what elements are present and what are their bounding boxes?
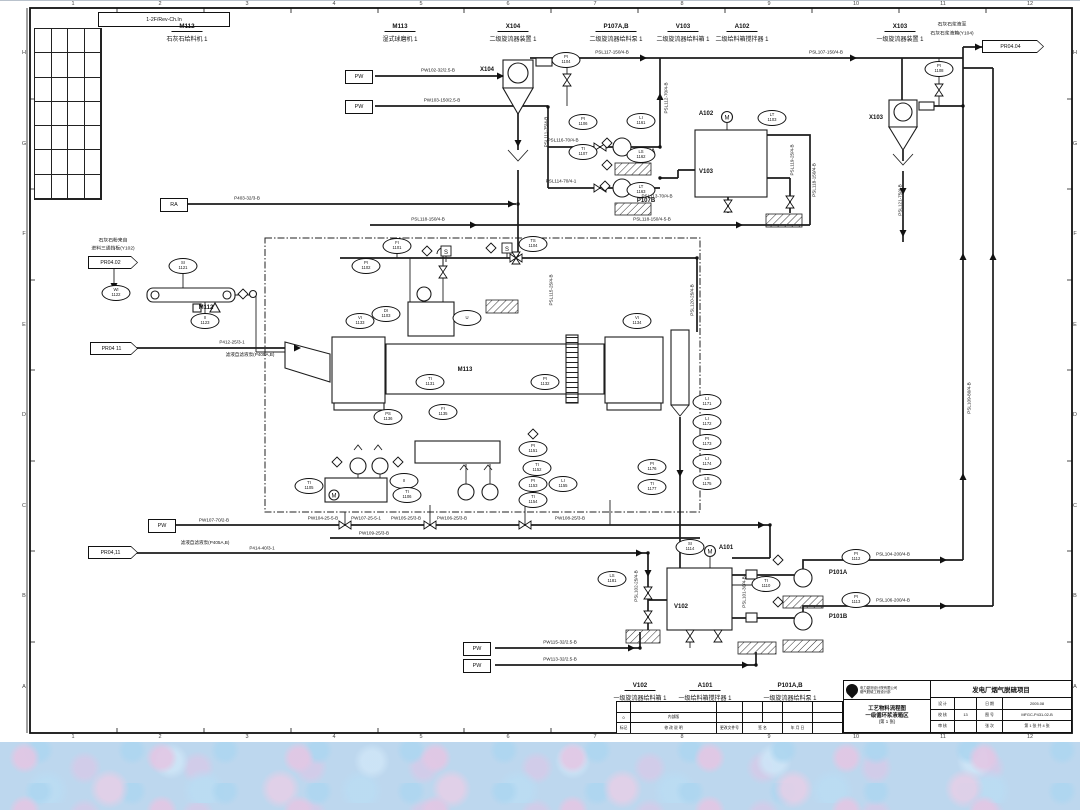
equipment-header: A102 二级给料箱搅拌器 1 <box>715 15 768 43</box>
utility-box: PW <box>345 100 373 114</box>
title-grid-cell <box>955 721 977 732</box>
utility-box: PW <box>148 519 176 533</box>
equipment-header-tag: M113 <box>384 23 415 32</box>
equipment-header: V103 二级旋流器给料箱 1 <box>656 15 709 43</box>
instrument-number: 1105 <box>304 486 313 491</box>
instrument-number: 1108 <box>934 69 943 74</box>
stream-flag-label: PR04.04 <box>1000 44 1020 50</box>
pipe-line-label: PSL113-70/4-B <box>641 194 672 199</box>
instrument-function: II <box>403 479 405 484</box>
equipment-tag: A102 <box>699 111 713 117</box>
equipment-header: P101A,B 一级旋流器给料泵 1 <box>763 674 816 702</box>
instrument-number: 1172 <box>702 422 711 427</box>
pipe-line-label: PSL104-200/4-B <box>876 552 910 557</box>
zone-number: 3 <box>245 1 248 7</box>
instrument-bubble: LT 1103 <box>758 110 787 126</box>
equipment-header: V102 一级旋流器给料箱 1 <box>613 674 666 702</box>
instrument-bubble: LI 1172 <box>693 414 722 430</box>
equipment-header: X103 一级旋流器装置 1 <box>876 15 923 43</box>
instrument-number: 1101 <box>392 246 401 251</box>
instrument-bubble: PI 1113 <box>842 592 871 608</box>
instrument-number: 1176 <box>647 467 656 472</box>
zone-number: 8 <box>680 734 683 740</box>
pipe-line-label: PW107-25-5-1 <box>351 516 381 521</box>
stream-note: 进料三通挡板(Y102) <box>91 245 134 252</box>
equipment-header-tag: X103 <box>885 23 915 32</box>
zone-letter: H <box>22 50 26 56</box>
utility-box-label: PW <box>355 104 364 110</box>
instrument-number: 1134 <box>632 321 641 326</box>
stream-flag: PR04,11 <box>88 546 138 559</box>
pipe-line-label: P414-40/3-1 <box>249 546 274 551</box>
zone-letter: F <box>22 231 25 237</box>
pipe-line-label: PW109-25/3-B <box>359 531 389 536</box>
instrument-number: 1102 <box>361 266 370 271</box>
equipment-tag: X103 <box>869 115 883 121</box>
equipment-header-name: 石灰石给料机 1 <box>166 34 207 43</box>
drawing-title: 工艺物料流程图 一级循环浆液箱区 (第 1 张) <box>844 700 930 732</box>
instrument-bubble: PI 1176 <box>638 459 667 475</box>
zone-letter: E <box>22 322 26 328</box>
equipment-tag: M113 <box>458 367 473 373</box>
instrument-bubble: LI 1155 <box>549 476 578 492</box>
revision-cell <box>783 702 813 712</box>
svg-text:S: S <box>505 247 509 253</box>
equipment-header-tag: P101A,B <box>769 682 810 691</box>
instrument-number: 1110 <box>762 584 771 589</box>
drawing-title-line: (第 1 张) <box>879 719 896 726</box>
title-block: 电力勘测设计院有限公司 烟气脱硫工程设计部 工艺物料流程图 一级循环浆液箱区 (… <box>843 680 1072 733</box>
background-texture-strip <box>0 742 1080 810</box>
revision-row: 0内部版 <box>617 713 842 724</box>
equipment-header-tag: V102 <box>625 682 655 691</box>
instrument-bubble: PI 1153 <box>519 476 548 492</box>
pipe-line-label: PSL106-200/4-B <box>876 598 910 603</box>
instrument-bubble: PS 1136 <box>374 409 403 425</box>
instrument-number: 1106 <box>578 122 587 127</box>
zone-letter: C <box>22 503 26 509</box>
instrument-number: 1151 <box>528 449 537 454</box>
revision-table: 0内部版 标记修 改 说 明更改文件号签 名年 月 日 <box>616 701 843 733</box>
equipment-header-tag: A101 <box>690 682 721 691</box>
company-cell: 电力勘测设计院有限公司 烟气脱硫工程设计部 <box>844 681 930 700</box>
instrument-bubble: LS 1162 <box>627 147 656 163</box>
stream-flag: PR04.04 <box>982 40 1044 53</box>
equipment-tag: A101 <box>719 545 733 551</box>
zone-number: 1 <box>71 734 74 740</box>
pipe-line-label: PSL116-70/4-B <box>547 138 578 143</box>
title-grid-row: 设 计日 期2005.08 <box>931 698 1071 709</box>
instrument-bubble: VI 1133 <box>346 313 375 329</box>
equipment-header-tag: V103 <box>668 23 698 32</box>
pipe-line-label: PSL112-70/4-B <box>664 82 669 113</box>
pipe-line-label: PW103-150/2.5-B <box>424 98 461 103</box>
equipment-header-name: 一级旋流器装置 1 <box>876 34 923 43</box>
zone-number: 12 <box>1027 734 1033 740</box>
zone-number: 9 <box>767 734 770 740</box>
instrument-bubble: LI 1161 <box>627 113 656 129</box>
zone-letter: H <box>1073 50 1077 56</box>
instrument-number: 1155 <box>558 484 567 489</box>
instrument-bubble: II 1123 <box>191 313 220 329</box>
instrument-number: 1103 <box>767 118 776 123</box>
instrument-number: 1173 <box>702 442 711 447</box>
instrument-number: 1104 <box>561 60 570 65</box>
instrument-number: 1175 <box>702 482 711 487</box>
zone-letter: A <box>22 684 26 690</box>
pipe-line-label: PSL102-25/4-B <box>634 570 639 601</box>
instrument-bubble: PI 1102 <box>352 258 381 274</box>
utility-box-label: RA <box>170 202 178 208</box>
revision-strip-table <box>34 28 102 200</box>
zone-number: 2 <box>158 1 161 7</box>
instrument-bubble: LI 1171 <box>693 394 722 410</box>
instrument-bubble: LS 1175 <box>693 474 722 490</box>
instrument-bubble: VI 1134 <box>623 313 652 329</box>
revision-footer-cell <box>813 723 842 733</box>
pipe-line-label: 滤液自滤液泵(P405A,B) <box>181 540 230 546</box>
zone-number: 5 <box>419 1 422 7</box>
instrument-number: 1106 <box>402 495 411 500</box>
zone-number: 10 <box>853 734 859 740</box>
svg-text:M: M <box>332 494 337 500</box>
stream-note: 石灰石粉来自 <box>99 237 128 244</box>
equipment-tag: V102 <box>674 604 688 610</box>
equipment-header-name: 二级旋流器装置 1 <box>489 34 536 43</box>
instrument-number: 1114 <box>686 547 695 552</box>
stream-flag-label: PR04.02 <box>100 260 120 266</box>
project-title: 发电厂烟气脱硫项目 <box>931 681 1071 698</box>
title-grid-row: 校 核13图 号MFGC-P431-02-B <box>931 710 1071 721</box>
zone-letter: E <box>1073 322 1077 328</box>
instrument-bubble: TI 1177 <box>638 479 667 495</box>
instrument-number: 1136 <box>383 417 392 422</box>
instrument-number: 1131 <box>425 382 434 387</box>
equipment-header-tag: P107A,B <box>595 23 636 32</box>
revision-cell <box>717 713 743 723</box>
revision-cell <box>631 702 717 712</box>
utility-box-label: PW <box>158 523 167 529</box>
instrument-number: 1177 <box>647 487 656 492</box>
instrument-bubble: PI 1104 <box>552 52 581 68</box>
instrument-number: 1107 <box>578 152 587 157</box>
instrument-bubble: TI 1107 <box>569 144 598 160</box>
zone-number: 9 <box>767 1 770 7</box>
svg-text:M: M <box>708 550 713 556</box>
instrument-bubble: PI 1112 <box>842 549 871 565</box>
revision-cell: 0 <box>617 713 631 723</box>
stream-flag: PR04.02 <box>88 256 138 269</box>
title-grid-cell: 校 核 <box>931 710 955 720</box>
revision-cell <box>763 702 783 712</box>
revision-footer-cell: 更改文件号 <box>717 723 743 733</box>
title-grid-row: 审 核张 次第 1 张 共 4 张 <box>931 721 1071 732</box>
instrument-number: 1103 <box>381 314 390 319</box>
utility-box-label: PW <box>355 74 364 80</box>
equipment-header: M113 湿式球磨机 1 <box>382 15 417 43</box>
instrument-number: 1152 <box>532 468 541 473</box>
equipment-tag: P101B <box>829 614 847 620</box>
instrument-number: 1171 <box>702 402 711 407</box>
instrument-bubble: U <box>453 310 482 326</box>
title-grid-cell: 2005.08 <box>1003 698 1071 708</box>
instrument-number: 1112 <box>852 557 861 562</box>
revision-cell <box>813 702 842 712</box>
equipment-header: P107A,B 二级旋流器给料泵 1 <box>589 15 642 43</box>
title-grid-cell: 13 <box>955 710 977 720</box>
zone-letter: D <box>22 412 26 418</box>
equipment-header-name: 湿式球磨机 1 <box>382 34 417 43</box>
revision-row <box>617 702 842 713</box>
title-block-right: 发电厂烟气脱硫项目 设 计日 期2005.08 校 核13图 号MFGC-P43… <box>931 681 1071 732</box>
instrument-number: 1121 <box>178 266 187 271</box>
instrument-bubble: TI 1152 <box>523 460 552 476</box>
zone-number: 11 <box>940 734 946 740</box>
instrument-number: 1153 <box>528 484 537 489</box>
zone-letter: D <box>1073 412 1077 418</box>
instrument-number: 1154 <box>528 500 537 505</box>
zone-number: 2 <box>158 734 161 740</box>
title-grid-cell: 设 计 <box>931 698 955 708</box>
instrument-bubble: TI 1131 <box>416 374 445 390</box>
utility-box: PW <box>345 70 373 84</box>
instrument-bubble: PI 1132 <box>531 374 560 390</box>
instrument-bubble: PI 1106 <box>569 114 598 130</box>
instrument-number: 1122 <box>111 293 120 298</box>
zone-number: 12 <box>1027 1 1033 7</box>
title-grid-cell: 第 1 张 共 4 张 <box>1003 721 1071 732</box>
instrument-bubble: SI 1121 <box>169 258 198 274</box>
equipment-header-name: 二级给料箱搅拌器 1 <box>715 34 768 43</box>
zone-letter: C <box>1073 503 1077 509</box>
equipment-tag: X104 <box>480 67 494 73</box>
title-grid-cell: 图 号 <box>977 710 1003 720</box>
pipe-line-label: P412-25/3-1 <box>219 340 244 345</box>
drawing-title-line: 工艺物料流程图 <box>868 706 906 713</box>
instrument-number: 1104 <box>528 244 537 249</box>
pipe-line-label: PW105-25/3-B <box>391 516 421 521</box>
instrument-number: 1162 <box>636 155 645 160</box>
pipe-line-label: PSL111-75/4-B <box>544 117 549 148</box>
equipment-header-name: 二级旋流器给料泵 1 <box>589 34 642 43</box>
instrument-bubble: FI 1135 <box>429 404 458 420</box>
title-block-left: 电力勘测设计院有限公司 烟气脱硫工程设计部 工艺物料流程图 一级循环浆液箱区 (… <box>844 681 931 732</box>
zone-letter: G <box>22 141 26 147</box>
pipe-line-label: PSL119-25/4-B <box>790 144 795 175</box>
pipe-line-label: PSL107-150/4-B <box>809 50 843 55</box>
utility-box: RA <box>160 198 188 212</box>
zone-number: 3 <box>245 734 248 740</box>
stream-flag: PR04 11 <box>90 342 138 355</box>
svg-text:S: S <box>444 250 448 256</box>
equipment-header: M112 石灰石给料机 1 <box>166 15 207 43</box>
company-logo <box>844 682 861 699</box>
instrument-bubble: FI 1101 <box>383 238 412 254</box>
equipment-tag: P101A <box>829 570 847 576</box>
revision-footer-cell: 标记 <box>617 723 631 733</box>
pipe-line-label: PSL109-80/4-B <box>967 382 972 413</box>
pipe-line-label: PW104-25-5-B <box>308 516 338 521</box>
zone-number: 7 <box>593 1 596 7</box>
instrument-bubble: TI 1106 <box>393 487 422 503</box>
pipe-line-label: PSL120-25/4-B <box>690 284 695 315</box>
instrument-number: 1135 <box>438 412 447 417</box>
revision-cell <box>763 713 783 723</box>
zone-number: 6 <box>506 1 509 7</box>
instrument-bubble: LI 1174 <box>693 454 722 470</box>
revision-cell <box>783 713 813 723</box>
zone-number: 7 <box>593 734 596 740</box>
instrument-bubble: PI 1151 <box>519 441 548 457</box>
title-grid-cell: MFGC-P431-02-B <box>1003 710 1071 720</box>
revision-cell: 内部版 <box>631 713 717 723</box>
instrument-number: 1123 <box>200 321 209 326</box>
instrument-bubble: WI 1122 <box>102 285 131 301</box>
instrument-bubble: LS 1181 <box>598 571 627 587</box>
pipe-line-label: P403-32/3-B <box>234 196 260 201</box>
utility-box-label: PW <box>473 646 482 652</box>
zone-number: 1 <box>71 1 74 7</box>
pipe-line-label: PW106-25/3-B <box>437 516 467 521</box>
revision-cell <box>743 713 763 723</box>
zone-number: 4 <box>332 734 335 740</box>
pipe-line-label: PW108-25/3-B <box>555 516 585 521</box>
pipe-line-label: PSL118-150/4-5-B <box>633 217 671 222</box>
pipe-line-label: PW102-32/2.5-B <box>421 68 455 73</box>
equipment-header-tag: A102 <box>727 23 758 32</box>
instrument-function: U <box>465 316 468 321</box>
zone-letter: A <box>1073 684 1077 690</box>
instrument-bubble: PI 1173 <box>693 434 722 450</box>
instrument-number: 1174 <box>702 462 711 467</box>
equipment-tag: M112 <box>199 305 214 311</box>
revision-footer-cell: 签 名 <box>743 723 783 733</box>
revision-footer-row: 标记修 改 说 明更改文件号签 名年 月 日 <box>617 723 842 733</box>
instrument-bubble: TI 1105 <box>295 478 324 494</box>
pipe-line-label: PSL121-75/4-B <box>898 184 903 215</box>
pipe-line-label: PSL101-30/4-B <box>742 576 747 607</box>
equipment-header-tag: X104 <box>498 23 528 32</box>
title-grid-cell: 张 次 <box>977 721 1003 732</box>
instrument-number: 1161 <box>636 121 645 126</box>
instrument-bubble: TI 1154 <box>519 492 548 508</box>
equipment-shapes <box>147 58 934 630</box>
svg-text:M: M <box>725 116 730 122</box>
title-grid-cell: 审 核 <box>931 721 955 732</box>
utility-box-label: PW <box>473 663 482 669</box>
equipment-header-tag: M112 <box>171 23 202 32</box>
instrument-number: 1181 <box>607 579 616 584</box>
pipe-line-label: PSL114-70/4-1 <box>546 179 577 184</box>
equipment-header: A101 一级给料箱搅拌器 1 <box>678 674 731 702</box>
pid-drawing-sheet: MMM SS 1-2F/Rev-Ch.In M112 石灰石给料机 1 M113… <box>0 0 1080 810</box>
zone-number: 6 <box>506 734 509 740</box>
equipment-tag: P107B <box>637 198 655 204</box>
revision-footer-cell: 修 改 说 明 <box>631 723 717 733</box>
corner-note: 1-2F/Rev-Ch.In <box>98 12 230 27</box>
zone-number: 8 <box>680 1 683 7</box>
zone-number: 4 <box>332 1 335 7</box>
pipe-line-label: PSL117-150/4-B <box>595 50 629 55</box>
zone-letter: F <box>1073 231 1076 237</box>
zone-letter: B <box>22 593 26 599</box>
pipe-line-label: PSL115-25/4-B <box>549 274 554 305</box>
utility-box: PW <box>463 642 491 656</box>
revision-cell <box>717 702 743 712</box>
utility-box: PW <box>463 659 491 673</box>
zone-number: 5 <box>419 734 422 740</box>
instrument-number: 1133 <box>355 321 364 326</box>
zone-number: 11 <box>940 1 946 7</box>
title-grid-cell <box>955 698 977 708</box>
stream-note: 石灰石浆液至 <box>938 21 967 28</box>
stream-flag-label: PR04 11 <box>102 346 122 352</box>
zone-letter: G <box>1073 141 1077 147</box>
company-line: 烟气脱硫工程设计部 <box>860 690 897 694</box>
pipe-line-label: PSL118-150/4-B <box>812 163 817 197</box>
zone-number: 10 <box>853 1 859 7</box>
instrument-number: 1113 <box>852 600 861 605</box>
revision-footer-cell: 年 月 日 <box>783 723 813 733</box>
pipe-line-label: PSL118-150/4-B <box>411 217 445 222</box>
stream-note: 石灰石浆液箱(Y104) <box>930 30 973 37</box>
equipment-header: X104 二级旋流器装置 1 <box>489 15 536 43</box>
revision-cell <box>743 702 763 712</box>
instrument-bubble: DI 1103 <box>372 306 401 322</box>
equipment-tag: V103 <box>699 169 713 175</box>
instrument-bubble: TS 1104 <box>519 236 548 252</box>
equipment-header-name: 二级旋流器给料箱 1 <box>656 34 709 43</box>
instrument-bubble: TI 1110 <box>752 576 781 592</box>
stream-flag-label: PR04,11 <box>101 550 121 556</box>
instrument-bubble: PI 1108 <box>925 61 954 77</box>
pipe-line-label: PW115-32/2.5-B <box>543 640 577 645</box>
pipe-line-label: PW107-70/2-B <box>199 518 229 523</box>
pipe-line-label: 滤液自滤液泵(P405A,B) <box>226 352 275 358</box>
pipe-line-label: PW113-32/2.5-B <box>543 657 577 662</box>
zone-letter: B <box>1073 593 1077 599</box>
instrument-number: 1132 <box>540 382 549 387</box>
title-grid-cell: 日 期 <box>977 698 1003 708</box>
revision-cell <box>617 702 631 712</box>
revision-cell <box>813 713 842 723</box>
instrument-bubble: SI 1114 <box>676 539 705 555</box>
